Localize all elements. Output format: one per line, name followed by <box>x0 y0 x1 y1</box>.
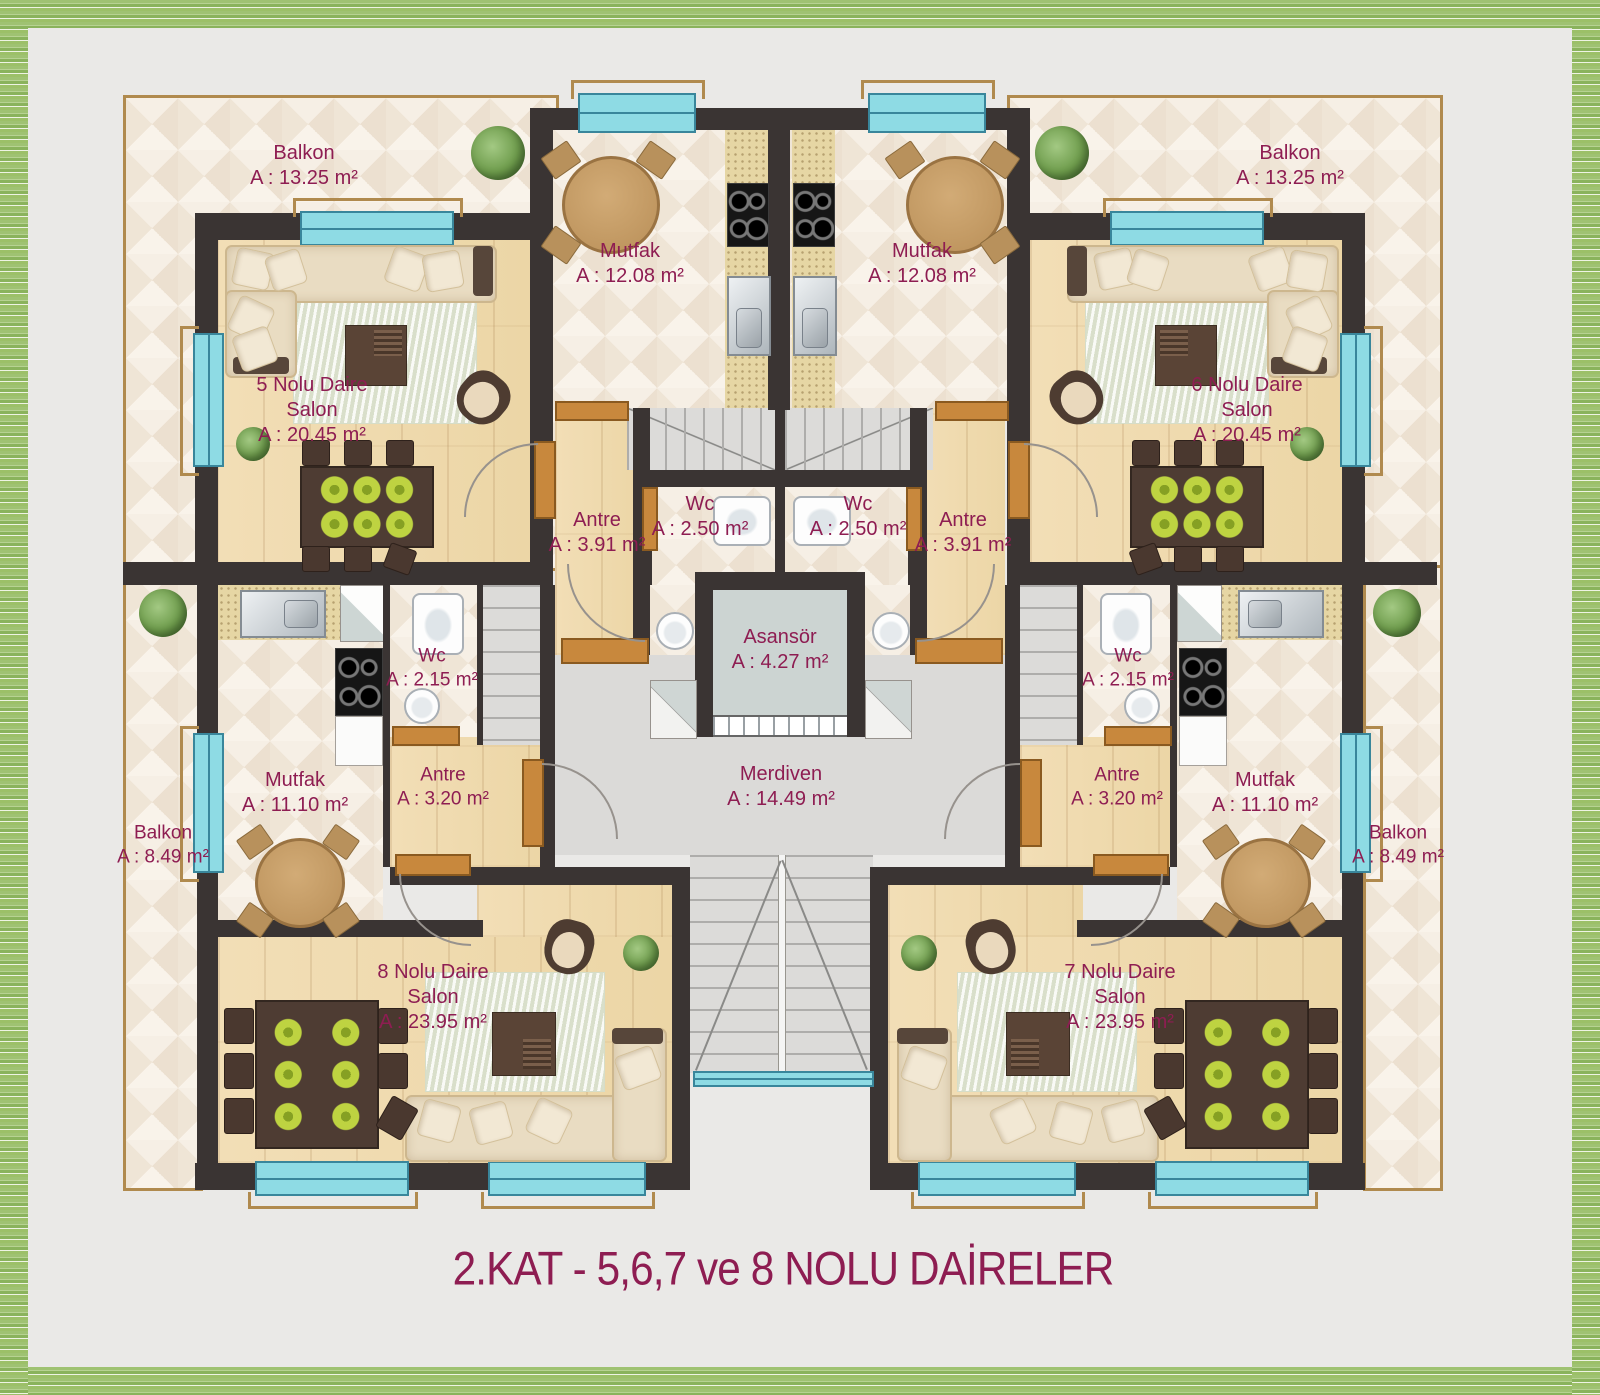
door <box>935 401 1009 421</box>
chair <box>224 1008 254 1044</box>
room-name: Antre <box>915 508 1012 533</box>
cabinet <box>335 716 383 766</box>
chair <box>302 546 330 572</box>
pillow <box>421 249 465 293</box>
room-area: A : 23.95 m² <box>1064 1009 1175 1034</box>
chair <box>386 440 414 466</box>
dining-table <box>1130 466 1264 548</box>
tv-unit-detail <box>523 1039 551 1069</box>
plant <box>1035 126 1089 180</box>
window <box>1110 211 1264 246</box>
room-area: A : 12.08 m² <box>576 264 684 289</box>
room-area: A : 3.20 m² <box>1071 787 1163 811</box>
room-area: A : 12.08 m² <box>868 264 976 289</box>
wall <box>672 870 690 1190</box>
label-wc-5: Wc A : 2.50 m² <box>652 492 749 542</box>
window <box>1340 333 1371 467</box>
frame-left <box>0 0 28 1395</box>
label-wc-8: Wc A : 2.15 m² <box>386 644 478 691</box>
room-area: A : 20.45 m² <box>256 422 367 447</box>
washbasin <box>404 688 440 724</box>
label-antre-8: Antre A : 3.20 m² <box>397 763 489 810</box>
wall <box>1342 585 1363 1190</box>
label-mutfak-8: Mutfak A : 11.10 m² <box>242 768 348 818</box>
wall <box>650 470 775 487</box>
kitchen-counter <box>725 130 768 408</box>
kitchen-sink <box>1238 590 1324 638</box>
stove <box>793 183 835 247</box>
apartment-name: 8 Nolu Daire <box>377 960 488 985</box>
plant <box>471 126 525 180</box>
dining-table <box>1185 1000 1309 1149</box>
label-salon-5: 5 Nolu Daire Salon A : 20.45 m² <box>256 373 367 447</box>
page-title: 2.KAT - 5,6,7 ve 8 NOLU DAİRELER <box>453 1241 1114 1296</box>
door <box>1104 726 1172 746</box>
washbasin <box>872 612 910 650</box>
sofa-armrest <box>473 246 493 296</box>
room-name: Salon <box>1191 398 1302 423</box>
kitchen-sink <box>793 276 837 356</box>
room-name: Balkon <box>1236 141 1344 166</box>
room-name: Salon <box>1064 985 1175 1010</box>
sink-bowl <box>284 600 318 628</box>
tv-unit <box>492 1012 556 1076</box>
apartment-name: 7 Nolu Daire <box>1064 960 1175 985</box>
tv-unit-detail <box>1160 330 1188 356</box>
window <box>488 1161 646 1196</box>
entrance-door-8 <box>522 759 544 847</box>
wall <box>785 470 910 487</box>
sink-bowl <box>1248 600 1282 628</box>
wall <box>775 408 785 585</box>
entrance-door-7 <box>1020 759 1042 847</box>
room-name: Wc <box>652 492 749 517</box>
room-name: Mutfak <box>1212 768 1318 793</box>
plant <box>1373 589 1421 637</box>
label-merdiven: Merdiven A : 14.49 m² <box>727 762 835 812</box>
room-name: Wc <box>1082 644 1174 668</box>
tv-unit-detail <box>1011 1039 1039 1069</box>
chair <box>1308 1098 1338 1134</box>
room-area: A : 20.45 m² <box>1191 422 1302 447</box>
chair <box>344 546 372 572</box>
dining-table <box>300 466 434 548</box>
armchair-seat <box>972 928 1012 971</box>
room-area: A : 3.91 m² <box>915 533 1012 558</box>
sofa-armrest <box>612 1028 663 1044</box>
door <box>392 726 460 746</box>
armchair-seat <box>457 375 506 424</box>
window <box>868 93 986 133</box>
apartment-name: 6 Nolu Daire <box>1191 373 1302 398</box>
room-area: A : 23.95 m² <box>377 1009 488 1034</box>
entrance-door-5 <box>561 638 649 664</box>
chair <box>378 1053 408 1089</box>
chair <box>224 1053 254 1089</box>
room-area: A : 2.15 m² <box>386 668 478 692</box>
room-name: Antre <box>1071 763 1163 787</box>
dining-table <box>255 1000 379 1149</box>
frame-bottom <box>0 1367 1600 1395</box>
window <box>1155 1161 1309 1196</box>
kitchen-sink <box>240 590 326 638</box>
chair <box>1308 1053 1338 1089</box>
room-area: A : 13.25 m² <box>250 166 358 191</box>
kitchen-sink <box>727 276 771 356</box>
chair <box>1308 1008 1338 1044</box>
room-name: Wc <box>386 644 478 668</box>
room-name: Balkon <box>117 821 209 845</box>
plant <box>623 935 659 971</box>
plant <box>901 935 937 971</box>
door <box>1093 854 1169 876</box>
label-salon-6: 6 Nolu Daire Salon A : 20.45 m² <box>1191 373 1302 447</box>
chair <box>1216 546 1244 572</box>
armchair-seat <box>548 928 588 971</box>
label-asansor: Asansör A : 4.27 m² <box>732 625 829 675</box>
room-area: A : 2.15 m² <box>1082 668 1174 692</box>
label-balkon-7: Balkon A : 8.49 m² <box>1352 821 1444 868</box>
window <box>255 1161 409 1196</box>
washbasin <box>656 612 694 650</box>
cabinet <box>1179 716 1227 766</box>
washbasin <box>1124 688 1160 724</box>
sofa-armrest <box>897 1028 948 1044</box>
wall <box>870 870 888 1190</box>
label-balkon-top-left: Balkon A : 13.25 m² <box>250 141 358 191</box>
room-name: Mutfak <box>242 768 348 793</box>
room-name: Salon <box>377 985 488 1010</box>
room-name: Balkon <box>250 141 358 166</box>
frame-top <box>0 0 1600 28</box>
tv-unit-detail <box>374 330 402 356</box>
room-area: A : 8.49 m² <box>1352 845 1444 869</box>
stove <box>1179 648 1227 716</box>
sink-bowl <box>802 308 828 348</box>
label-wc-6: Wc A : 2.50 m² <box>810 492 907 542</box>
wall <box>383 585 390 867</box>
sink-bowl <box>736 308 762 348</box>
label-mutfak-6: Mutfak A : 12.08 m² <box>868 239 976 289</box>
room-name: Asansör <box>732 625 829 650</box>
chair <box>1174 546 1202 572</box>
window <box>578 93 696 133</box>
wall <box>768 108 790 410</box>
wall <box>197 585 218 1190</box>
label-salon-7: 7 Nolu Daire Salon A : 23.95 m² <box>1064 960 1175 1034</box>
room-area: A : 13.25 m² <box>1236 166 1344 191</box>
corner-cabinet <box>1177 585 1222 642</box>
pillow <box>1285 249 1329 293</box>
stairwell-window <box>693 1071 874 1087</box>
label-antre-7: Antre A : 3.20 m² <box>1071 763 1163 810</box>
kitchen-counter <box>792 130 835 408</box>
label-mutfak-7: Mutfak A : 11.10 m² <box>1212 768 1318 818</box>
room-area: A : 3.91 m² <box>549 533 646 558</box>
room-name: Merdiven <box>727 762 835 787</box>
wall <box>123 562 553 585</box>
room-area: A : 14.49 m² <box>727 787 835 812</box>
entrance-door-6 <box>915 638 1003 664</box>
window <box>193 333 224 467</box>
room-name: Antre <box>397 763 489 787</box>
shaft-vent <box>865 680 912 739</box>
room-name: Mutfak <box>576 239 684 264</box>
room-name: Mutfak <box>868 239 976 264</box>
chair <box>1132 440 1160 466</box>
corner-cabinet <box>340 585 385 642</box>
room-area: A : 8.49 m² <box>117 845 209 869</box>
stove <box>727 183 769 247</box>
label-balkon-top-right: Balkon A : 13.25 m² <box>1236 141 1344 191</box>
sofa-armrest <box>1067 246 1087 296</box>
label-antre-6: Antre A : 3.91 m² <box>915 508 1012 558</box>
room-area: A : 2.50 m² <box>652 517 749 542</box>
room-area: A : 4.27 m² <box>732 650 829 675</box>
tv-unit <box>1006 1012 1070 1076</box>
stairs-apartment-7 <box>1020 585 1077 745</box>
chair <box>224 1098 254 1134</box>
room-name: Salon <box>256 398 367 423</box>
room-name: Antre <box>549 508 646 533</box>
apartment-name: 5 Nolu Daire <box>256 373 367 398</box>
room-area: A : 3.20 m² <box>397 787 489 811</box>
door <box>395 854 471 876</box>
stove <box>335 648 383 716</box>
window <box>918 1161 1076 1196</box>
room-area: A : 2.50 m² <box>810 517 907 542</box>
stair-rail <box>778 855 786 1073</box>
room-area: A : 11.10 m² <box>242 793 348 818</box>
elevator-door <box>713 715 847 737</box>
chair <box>1154 1053 1184 1089</box>
stairs-apartment-8 <box>483 585 540 745</box>
frame-right <box>1572 0 1600 1395</box>
label-antre-5: Antre A : 3.91 m² <box>549 508 646 558</box>
room-area: A : 11.10 m² <box>1212 793 1318 818</box>
shaft-vent <box>650 680 697 739</box>
window <box>300 211 454 246</box>
plant <box>139 589 187 637</box>
door <box>555 401 629 421</box>
room-name: Balkon <box>1352 821 1444 845</box>
room-name: Wc <box>810 492 907 517</box>
label-mutfak-5: Mutfak A : 12.08 m² <box>576 239 684 289</box>
label-wc-7: Wc A : 2.15 m² <box>1082 644 1174 691</box>
label-balkon-8: Balkon A : 8.49 m² <box>117 821 209 868</box>
floor-plan-page: Balkon A : 13.25 m² Balkon A : 13.25 m² … <box>0 0 1600 1395</box>
label-salon-8: 8 Nolu Daire Salon A : 23.95 m² <box>377 960 488 1034</box>
